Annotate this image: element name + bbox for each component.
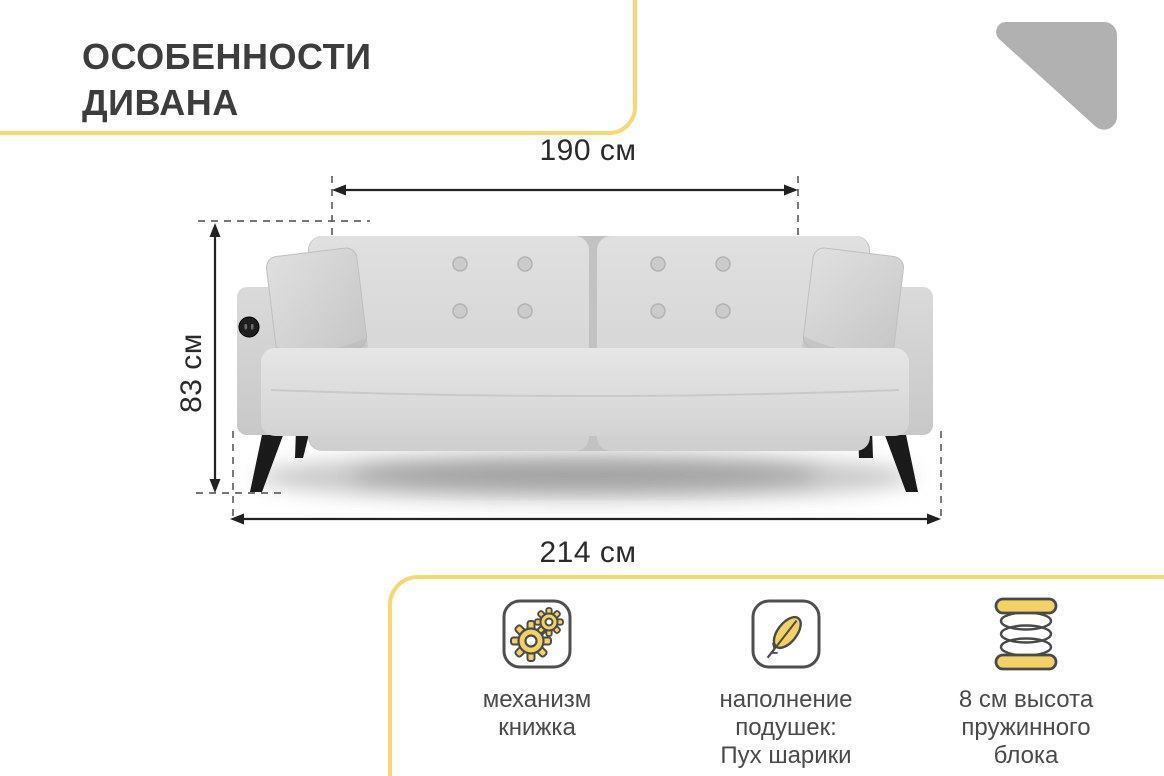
sofa-pillow-left (265, 247, 368, 363)
feature-spring-block-label: 8 см высота пружинного блока (911, 686, 1141, 770)
sofa-pillow-right (802, 247, 905, 363)
page-title-line1: ОСОБЕННОСТИ (82, 34, 371, 80)
feature-spring-block: 8 см высота пружинного блока (911, 594, 1141, 770)
sofa-illustration (225, 230, 945, 525)
feature-cushion-filling-label: наполнение подушек: Пух шарики (671, 686, 901, 770)
feature-fold-mechanism: механизм книжка (422, 594, 652, 742)
infographic-canvas: ОСОБЕННОСТИ ДИВАНА 190 см 83 см 214 см (0, 0, 1164, 776)
dimension-back-width-label: 190 см (488, 134, 688, 168)
feature-fold-mechanism-label: механизм книжка (422, 686, 652, 742)
dimension-height-label: 83 см (175, 328, 209, 418)
feature-cushion-filling: наполнение подушек: Пух шарики (671, 594, 901, 770)
page-title-line2: ДИВАНА (82, 80, 371, 126)
page-title: ОСОБЕННОСТИ ДИВАНА (82, 34, 371, 126)
corner-triangle-decoration (975, 12, 1125, 142)
usb-socket-icon (239, 317, 259, 337)
dimension-total-width-label: 214 см (488, 536, 688, 570)
gears-icon (501, 598, 573, 670)
spring-icon (986, 596, 1066, 672)
sofa-shadow-core (350, 461, 820, 489)
feather-icon (750, 598, 822, 670)
